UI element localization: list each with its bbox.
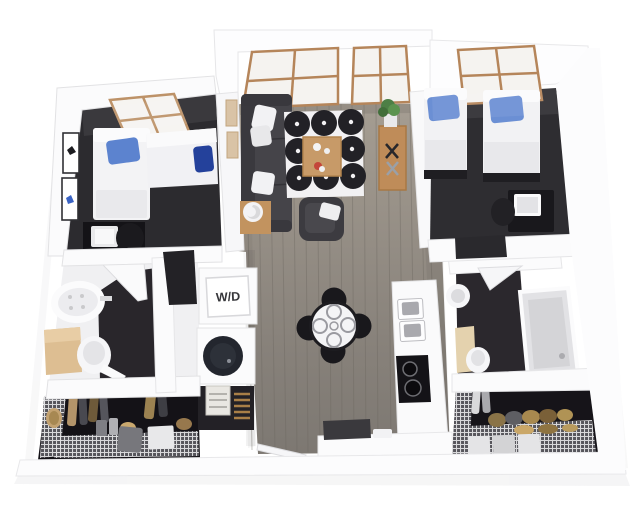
svg-text:W/D: W/D [216, 289, 241, 304]
